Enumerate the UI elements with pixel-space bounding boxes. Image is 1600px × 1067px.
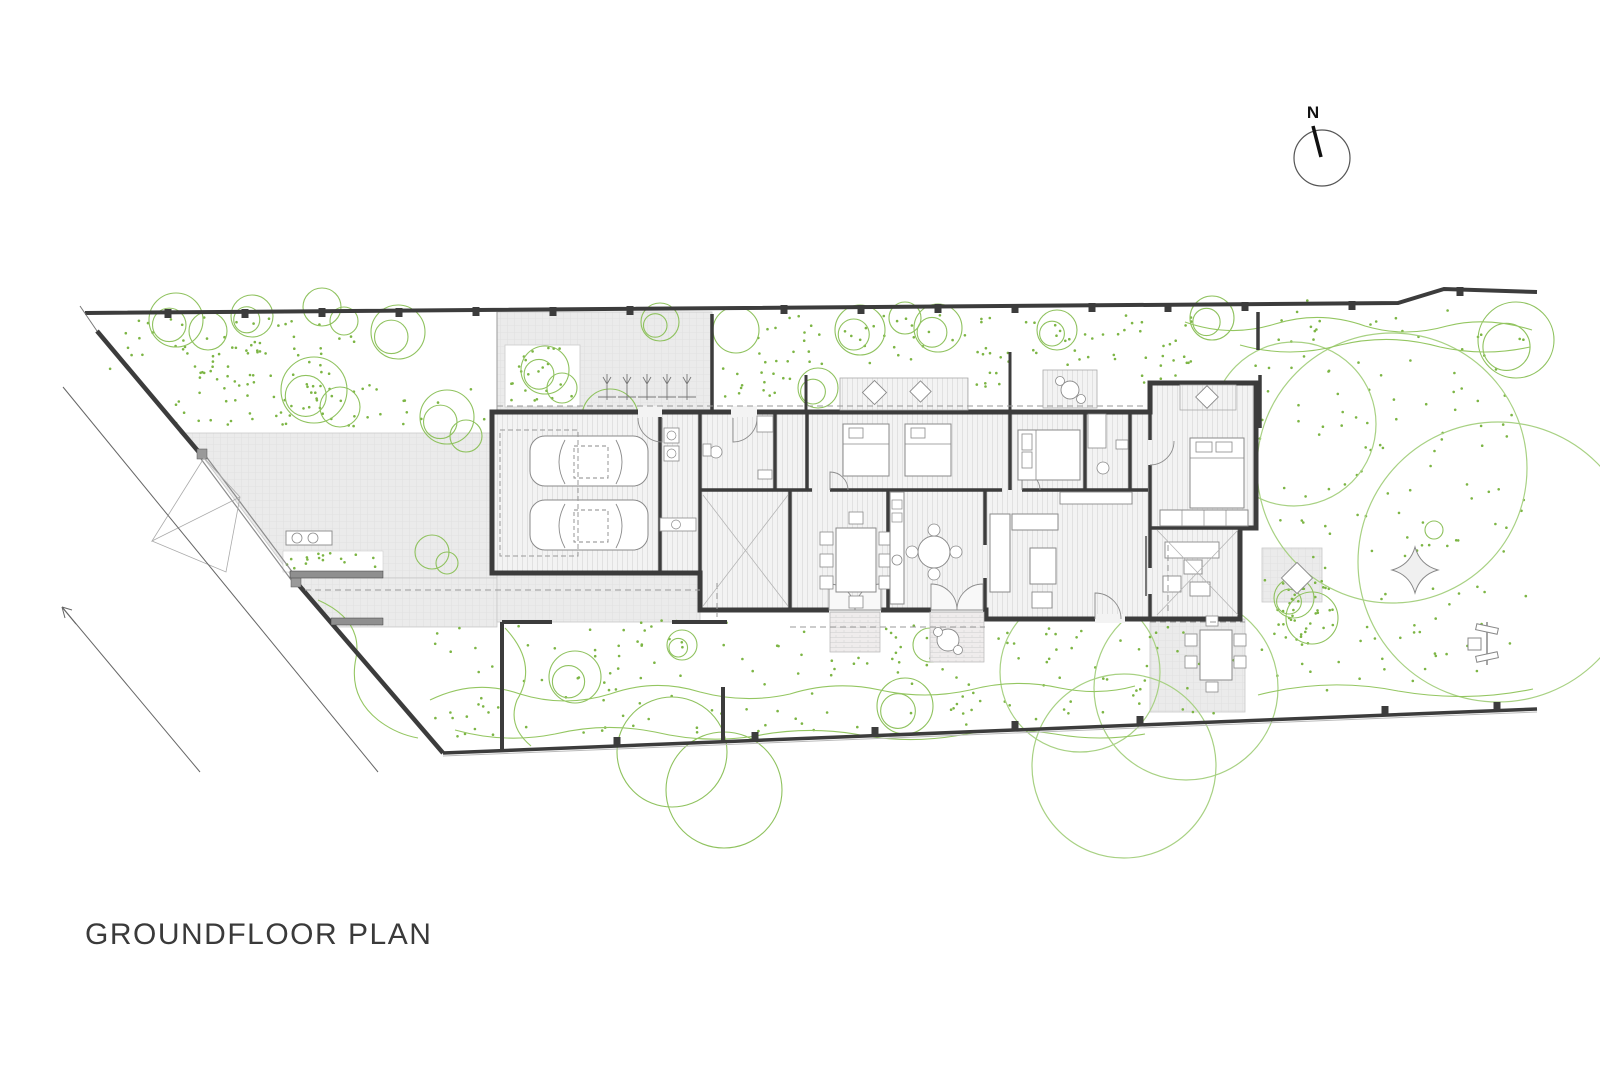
chair — [1185, 656, 1197, 668]
road-line — [62, 607, 200, 772]
garden-dot — [264, 352, 267, 355]
garden-dot — [1063, 708, 1066, 711]
chair — [928, 568, 940, 580]
garden-dot — [340, 558, 343, 561]
garden-dot — [1424, 668, 1427, 671]
dots-south-1 — [434, 619, 728, 737]
garden-dot — [227, 365, 230, 368]
garden-dot — [1087, 356, 1090, 359]
garden-dot — [872, 325, 875, 328]
garden-dot — [800, 654, 803, 657]
garden-dot — [1428, 544, 1431, 547]
garden-dot — [955, 676, 958, 679]
garden-dot — [764, 724, 767, 727]
garden-dot — [497, 706, 500, 709]
garden-dot — [170, 318, 173, 321]
chair — [1056, 377, 1065, 386]
garden-dot — [762, 389, 765, 392]
garden-dot — [1141, 321, 1144, 324]
tree-circle — [189, 312, 227, 350]
fence-post — [550, 307, 557, 316]
pillow — [1196, 442, 1212, 452]
garden-dot — [253, 381, 256, 384]
garden-dot — [1310, 326, 1313, 329]
garden-dot — [639, 702, 642, 705]
garden-dot — [1293, 594, 1296, 597]
planting-strip — [283, 551, 383, 572]
garden-dot — [1413, 631, 1416, 634]
garden-dot — [1172, 359, 1175, 362]
garden-dot — [1322, 627, 1325, 630]
fence-post — [319, 308, 326, 317]
wall-west-upper — [97, 331, 203, 457]
garden-dot — [789, 378, 792, 381]
garden-dot — [1305, 627, 1308, 630]
garden-dot — [541, 366, 544, 369]
fence-post — [1349, 301, 1356, 310]
garden-dot — [1067, 712, 1070, 715]
garden-dot — [1285, 636, 1288, 639]
garden-dot — [1380, 598, 1383, 601]
garden-dot — [1341, 411, 1344, 414]
tree-circle-inner — [552, 666, 584, 698]
compass — [1294, 126, 1350, 186]
garden-dot — [640, 677, 643, 680]
garden-dot — [1340, 424, 1343, 427]
garden-dot — [1453, 372, 1456, 375]
chair — [950, 546, 962, 558]
plan-title: GROUNDFLOOR PLAN — [85, 918, 432, 951]
garden-dot — [1404, 555, 1407, 558]
garden-dot — [1355, 416, 1358, 419]
garden-dot — [1144, 679, 1147, 682]
garden-dot — [1358, 677, 1361, 680]
garden-dot — [1186, 687, 1189, 690]
garden-dot — [343, 561, 346, 564]
tree-circle — [231, 295, 273, 337]
garden-dot — [290, 405, 293, 408]
garden-dot — [308, 361, 311, 364]
garden-dot — [366, 416, 369, 419]
garden-dot — [259, 342, 262, 345]
garden-dot — [831, 659, 834, 662]
garden-dot — [1135, 689, 1138, 692]
garden-dot — [1169, 343, 1172, 346]
garden-dot — [774, 327, 777, 330]
garden-dot — [833, 668, 836, 671]
garden-dot — [292, 373, 295, 376]
garden-dot — [138, 320, 141, 323]
fence-post — [1382, 706, 1389, 715]
garden-dot — [1458, 592, 1461, 595]
garden-dot — [830, 674, 833, 677]
armchair — [1032, 592, 1052, 608]
tree-circle — [1037, 310, 1077, 350]
garden-dot — [1046, 661, 1049, 664]
garden-dot — [1119, 639, 1122, 642]
garden-dot — [643, 629, 646, 632]
fence-post — [858, 305, 865, 314]
fence-post — [396, 308, 403, 317]
generated-plan-layers — [62, 126, 1600, 858]
tree-circle-inner — [1483, 323, 1530, 370]
garden-dot — [609, 672, 612, 675]
garden-dot — [1476, 670, 1479, 673]
garden-dot — [1187, 362, 1190, 365]
garden-dot — [249, 412, 252, 415]
garden-dot — [436, 632, 439, 635]
tree-circle — [303, 288, 341, 326]
garden-dot — [1139, 688, 1142, 691]
garden-dot — [1434, 652, 1437, 655]
garden-dot — [979, 700, 982, 703]
garden-dot — [1304, 631, 1307, 634]
garden-dot — [127, 347, 130, 350]
garden-dot — [1155, 631, 1158, 634]
garden-dot — [989, 317, 992, 320]
garden-dot — [328, 372, 331, 375]
garden-dot — [647, 718, 650, 721]
tree-circle-inner — [1193, 308, 1220, 335]
garden-dot — [1332, 624, 1335, 627]
garden-dot — [277, 324, 280, 327]
garden-dot — [182, 348, 185, 351]
garden-dot — [314, 391, 317, 394]
garden-dot — [1261, 648, 1264, 651]
brick-terrace — [830, 612, 880, 652]
garden-dot — [602, 699, 605, 702]
outdoor-sofa — [1165, 542, 1219, 558]
garden-dot — [216, 378, 219, 381]
garden-dot — [1254, 364, 1257, 367]
garden-dot — [558, 347, 561, 350]
garden-dot — [895, 652, 898, 655]
shrub-wave — [1240, 339, 1530, 352]
toilet — [1097, 462, 1109, 474]
chair — [849, 512, 863, 524]
garden-dot — [1337, 661, 1340, 664]
garden-dot — [1466, 483, 1469, 486]
garden-dot — [1282, 623, 1285, 626]
dining-table — [836, 528, 876, 592]
garden-dot — [1309, 622, 1312, 625]
garden-dot — [510, 382, 513, 385]
garden-dot — [1477, 400, 1480, 403]
garden-dot — [594, 649, 597, 652]
garden-dot — [1032, 349, 1035, 352]
garden-dot — [632, 725, 635, 728]
tree-circle — [666, 732, 782, 848]
sink — [758, 470, 772, 479]
garden-dot — [1326, 689, 1329, 692]
tree-circle — [667, 630, 697, 660]
garden-dot — [608, 689, 611, 692]
garden-dot — [1448, 603, 1451, 606]
garden-dot — [950, 708, 953, 711]
garden-dot — [570, 395, 573, 398]
garden-dot — [340, 400, 343, 403]
garden-dot — [910, 712, 913, 715]
garden-dot — [1518, 338, 1521, 341]
garden-dot — [1399, 637, 1402, 640]
kitchen-sink — [892, 555, 902, 565]
garden-dot — [306, 383, 309, 386]
garden-dot — [1374, 637, 1377, 640]
toilet — [710, 446, 722, 458]
garden-dot — [109, 368, 112, 371]
garden-dot — [1283, 487, 1286, 490]
garden-dot — [238, 384, 241, 387]
garden-dot — [1268, 367, 1271, 370]
garden-dot — [284, 323, 287, 326]
garden-dot — [130, 354, 133, 357]
garden-dot — [1425, 403, 1428, 406]
garden-dot — [319, 347, 322, 350]
chair — [928, 524, 940, 536]
garden-dot — [763, 381, 766, 384]
garden-dot — [547, 347, 550, 350]
garden-dot — [1035, 352, 1038, 355]
garden-dot — [259, 350, 262, 353]
garden-dot — [980, 318, 983, 321]
garden-dot — [696, 731, 699, 734]
fence-post — [1089, 303, 1096, 312]
gate-post — [291, 577, 301, 587]
garden-dot — [1328, 488, 1331, 491]
garden-dot — [1132, 694, 1135, 697]
garden-dot — [308, 406, 311, 409]
garden-dot — [1505, 526, 1508, 529]
garden-dot — [1145, 356, 1148, 359]
outdoor-chair — [1163, 576, 1181, 592]
garden-dot — [209, 370, 212, 373]
garden-dot — [776, 710, 779, 713]
dots-north-3 — [976, 372, 1001, 388]
garden-dot — [1506, 435, 1509, 438]
garden-dot — [883, 315, 886, 318]
garden-dot — [297, 354, 300, 357]
garden-dot — [527, 373, 530, 376]
fence-south — [443, 709, 1537, 753]
fence-post — [473, 307, 480, 316]
garden-dot — [451, 717, 454, 720]
garden-dot — [1331, 608, 1334, 611]
garden-dot — [808, 350, 811, 353]
garden-dot — [289, 414, 292, 417]
tree-circle-inner — [801, 379, 826, 404]
garden-dot — [1494, 523, 1497, 526]
garden-dot — [1301, 643, 1304, 646]
garden-dot — [1359, 640, 1362, 643]
garden-dot — [533, 399, 536, 402]
garden-dot — [1117, 333, 1120, 336]
garden-dot — [866, 662, 869, 665]
garden-dot — [352, 425, 355, 428]
garden-dot — [541, 679, 544, 682]
sofa — [1012, 514, 1058, 530]
garden-dot — [1318, 433, 1321, 436]
garden-dot — [850, 335, 853, 338]
garden-dot — [801, 722, 804, 725]
garden-dot — [235, 347, 238, 350]
garden-dot — [1139, 330, 1142, 333]
outdoor-table — [1184, 560, 1202, 574]
garden-dot — [1290, 367, 1293, 370]
garden-dot — [374, 565, 377, 568]
garden-dot — [487, 711, 490, 714]
garden-dot — [206, 337, 209, 340]
garden-dot — [891, 658, 894, 661]
garden-dot — [939, 314, 942, 317]
garden-dot — [319, 364, 322, 367]
garden-dot — [810, 324, 813, 327]
garden-dot — [1091, 337, 1094, 340]
garden-dot — [818, 333, 821, 336]
garden-dot — [1143, 381, 1146, 384]
garden-dot — [811, 692, 814, 695]
tree-circle — [149, 293, 203, 347]
garden-table — [1200, 630, 1232, 680]
garden-dot — [315, 397, 318, 400]
garden-dot — [234, 399, 237, 402]
garden-dot — [1279, 519, 1282, 522]
garden-dot — [320, 353, 323, 356]
garden-dot — [212, 360, 215, 363]
garden-dot — [1455, 539, 1458, 542]
fence-north — [85, 289, 1537, 313]
garden-dot — [788, 317, 791, 320]
garden-dot — [1064, 340, 1067, 343]
garden-dot — [1183, 355, 1186, 358]
garden-dot — [1395, 418, 1398, 421]
garden-dot — [898, 661, 901, 664]
garden-dot — [212, 355, 215, 358]
chair — [820, 532, 833, 545]
garden-dot — [1160, 377, 1163, 380]
tree-circle — [281, 357, 347, 423]
garden-dot — [640, 621, 643, 624]
garden-dot — [896, 320, 899, 323]
garden-dot — [826, 711, 829, 714]
compass-north-label: N — [1307, 103, 1319, 122]
garden-dot — [1182, 708, 1185, 711]
toilet-tank — [703, 444, 711, 456]
tree-circle — [713, 307, 759, 353]
garden-dot — [250, 344, 253, 347]
garden-dot — [989, 372, 992, 375]
garden-dot — [797, 672, 800, 675]
garden-dot — [178, 400, 181, 403]
garden-dot — [1074, 349, 1077, 352]
garden-dot — [603, 681, 606, 684]
garden-dot — [910, 358, 913, 361]
garden-dot — [1304, 495, 1307, 498]
garden-dot — [209, 419, 212, 422]
garden-dot — [1102, 677, 1105, 680]
garden-dot — [982, 353, 985, 356]
garden-dot — [1522, 338, 1525, 341]
garden-dot — [1035, 718, 1038, 721]
garden-dot — [1017, 657, 1020, 660]
garden-dot — [1025, 321, 1028, 324]
garden-dot — [1324, 525, 1327, 528]
chair — [1206, 616, 1218, 626]
garden-dot — [194, 365, 197, 368]
garden-dot — [1138, 702, 1141, 705]
garden-dot — [622, 629, 625, 632]
garden-dot — [1454, 409, 1457, 412]
chair — [1206, 682, 1218, 692]
garden-dot — [223, 387, 226, 390]
fence-post — [1457, 287, 1464, 296]
garden-dot — [989, 352, 992, 355]
garden-dot — [183, 411, 186, 414]
garden-dot — [1344, 483, 1347, 486]
pillow — [911, 428, 925, 438]
garden-dot — [1488, 491, 1491, 494]
garden-dot — [1131, 322, 1134, 325]
compass-circle — [1294, 130, 1350, 186]
garden-dot — [962, 712, 965, 715]
garden-dot — [474, 647, 477, 650]
garden-dot — [589, 628, 592, 631]
garden-dot — [1075, 636, 1078, 639]
garden-dot — [554, 647, 557, 650]
garden-dot — [175, 403, 178, 406]
garden-dot — [1102, 333, 1105, 336]
road-arrow — [62, 607, 76, 624]
kitchen-table — [918, 536, 950, 568]
garden-dot — [182, 339, 185, 342]
garden-dot — [741, 658, 744, 661]
garden-dot — [1300, 635, 1303, 638]
garden-dot — [353, 340, 356, 343]
garden-dot — [1078, 358, 1081, 361]
garden-dot — [251, 418, 254, 421]
garden-dot — [1184, 324, 1187, 327]
garden-dot — [310, 391, 313, 394]
garden-dot — [650, 625, 653, 628]
garden-dot — [1068, 338, 1071, 341]
garden-dot — [470, 388, 473, 391]
garden-dot — [1434, 617, 1437, 620]
garden-dot — [1476, 586, 1479, 589]
fence-post — [781, 305, 788, 314]
garden-dot — [913, 336, 916, 339]
garden-dot — [1297, 404, 1300, 407]
garden-dot — [290, 558, 293, 561]
pillow — [849, 428, 863, 438]
garden-dot — [305, 562, 308, 565]
dryer — [664, 446, 679, 461]
garden-dot — [1381, 658, 1384, 661]
garden-dot — [318, 557, 321, 560]
garden-dot — [218, 353, 221, 356]
garden-dot — [857, 657, 860, 660]
garden-dot — [803, 631, 806, 634]
tree-circle-inner — [1040, 321, 1065, 346]
garden-dot — [911, 324, 914, 327]
tree-circle-inner — [881, 694, 916, 729]
retaining-wall — [290, 571, 383, 578]
garden-dot — [186, 352, 189, 355]
shelf — [1060, 492, 1132, 504]
garden-dot — [306, 386, 309, 389]
fence-post — [935, 304, 942, 313]
garden-dot — [510, 399, 513, 402]
garden-dot — [1174, 339, 1177, 342]
garden-dot — [1167, 626, 1170, 629]
